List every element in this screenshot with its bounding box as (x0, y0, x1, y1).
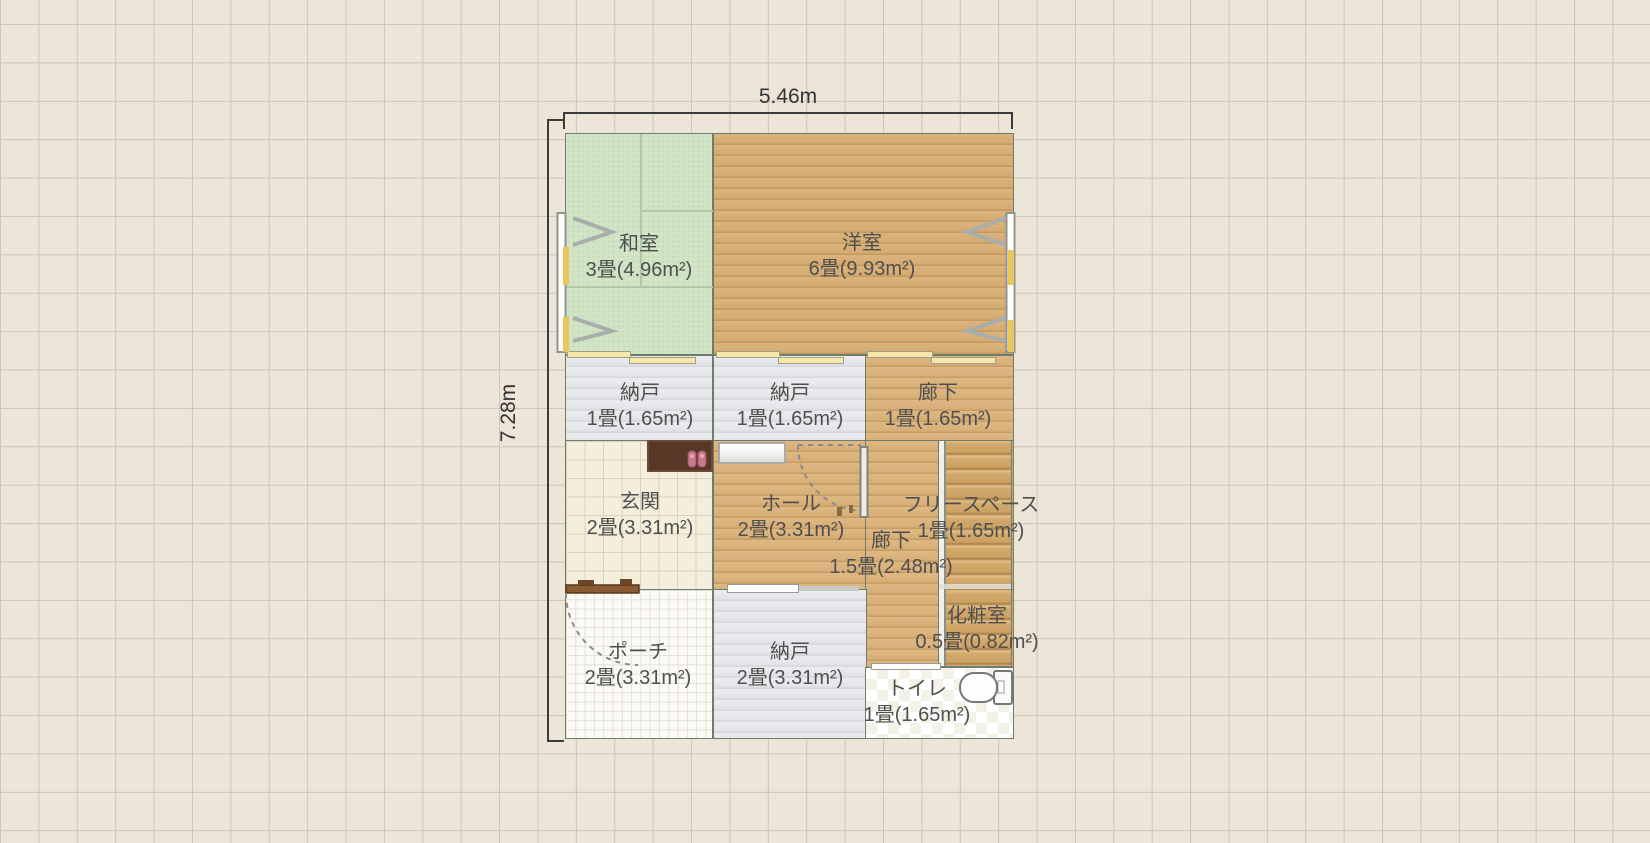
dimension-tick (547, 119, 564, 121)
room-label-nando-a: 納戸1畳(1.65m²) (587, 380, 694, 432)
room-label-nando-c: 納戸2畳(3.31m²) (737, 639, 844, 691)
room-label-nando-b: 納戸1畳(1.65m²) (737, 380, 844, 432)
shoe-cabinet[interactable] (718, 442, 786, 464)
dimension-width-label: 5.46m (759, 85, 817, 109)
tatami-divider (640, 210, 714, 212)
sliding-door-washitsu-right[interactable] (629, 357, 696, 364)
dimension-tick (547, 740, 564, 742)
dimension-line-height (547, 119, 549, 742)
sliding-door-washitsu-left[interactable] (567, 351, 631, 358)
room-label-rouka-a: 廊下1畳(1.65m²) (885, 380, 992, 432)
sliding-door-rouka-right[interactable] (931, 357, 996, 364)
dimension-line-width (563, 112, 1013, 114)
sliding-door-rouka-left[interactable] (867, 351, 933, 358)
sliding-door-youshitsu-right[interactable] (778, 357, 844, 364)
sliding-door-nando-c[interactable] (727, 584, 799, 593)
room-label-genkan: 玄関2畳(3.31m²) (587, 489, 694, 541)
sliding-door-toilet[interactable] (871, 663, 941, 670)
room-label-toilet: トイレ1畳(1.65m²) (864, 676, 971, 728)
room-label-washitsu: 和室3畳(4.96m²) (586, 231, 693, 283)
room-label-freespace: フリースペース1畳(1.65m²) (903, 492, 1040, 544)
genkan-step-mat[interactable] (647, 440, 713, 472)
stairs-landing (939, 584, 1011, 589)
floorplan-canvas[interactable]: { "canvas": { "width_dim": "5.46m", "hei… (0, 0, 1650, 843)
sliding-door-youshitsu-left[interactable] (716, 351, 780, 358)
room-label-keshoushitsu: 化粧室0.5畳(0.82m²) (915, 603, 1038, 655)
room-label-porch: ポーチ2畳(3.31m²) (585, 639, 692, 691)
dimension-height-label: 7.28m (497, 384, 521, 442)
dimension-tick (1011, 112, 1013, 129)
room-label-youshitsu: 洋室6畳(9.93m²) (809, 230, 916, 282)
tatami-divider (566, 286, 714, 288)
wall-rail-nando-c (799, 586, 859, 591)
